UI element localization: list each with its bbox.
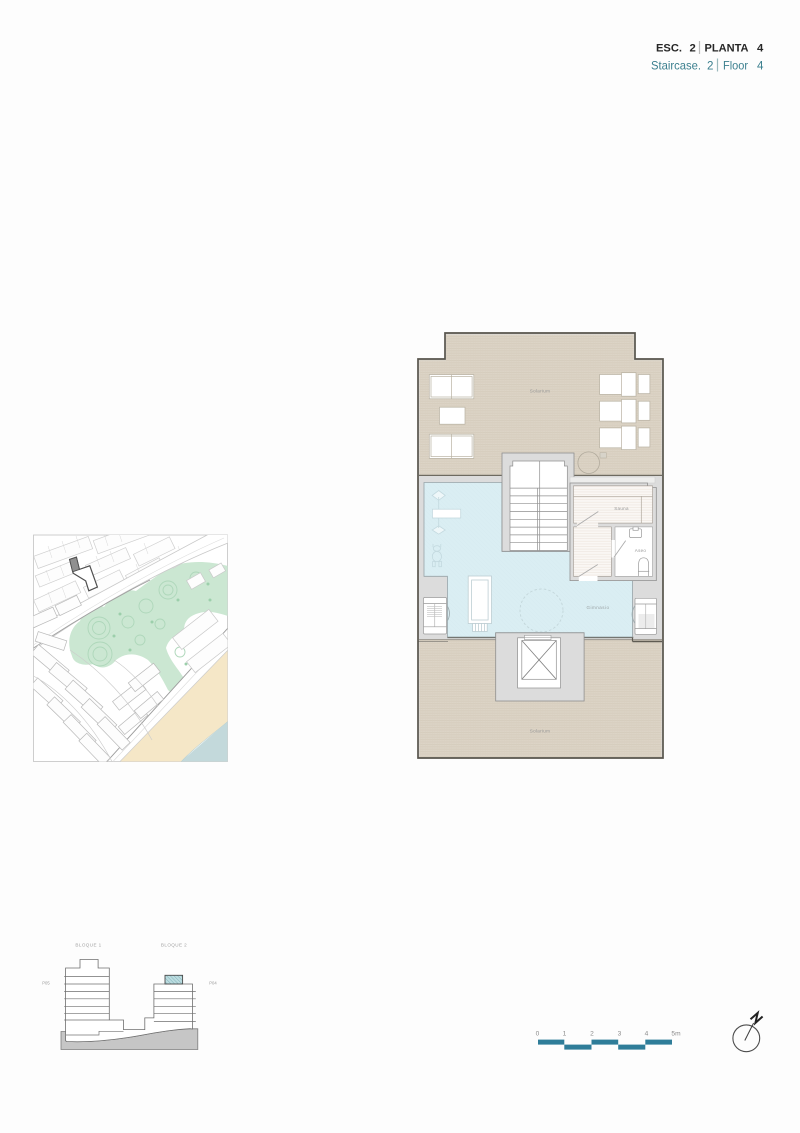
svg-text:Staircase.: Staircase.	[651, 60, 701, 73]
svg-text:Solarium: Solarium	[530, 389, 551, 394]
svg-text:Solarium: Solarium	[530, 729, 551, 734]
svg-text:2: 2	[707, 60, 713, 73]
svg-text:4: 4	[645, 1031, 649, 1038]
svg-text:BLOQUE 2: BLOQUE 2	[161, 943, 187, 948]
svg-text:2: 2	[690, 43, 696, 55]
svg-text:Sauna: Sauna	[614, 506, 629, 511]
svg-text:P05: P05	[42, 981, 50, 986]
svg-text:2: 2	[590, 1031, 594, 1038]
svg-text:3: 3	[618, 1031, 622, 1038]
svg-text:4: 4	[757, 60, 764, 73]
svg-text:1: 1	[563, 1031, 567, 1038]
svg-text:P04: P04	[209, 981, 217, 986]
svg-text:Aseo: Aseo	[635, 548, 647, 553]
svg-text:BLOQUE 1: BLOQUE 1	[75, 943, 101, 948]
svg-text:Floor: Floor	[723, 60, 748, 73]
svg-text:0: 0	[536, 1031, 540, 1038]
svg-text:ESC.: ESC.	[656, 43, 682, 55]
svg-text:PLANTA: PLANTA	[705, 43, 749, 55]
svg-text:5m: 5m	[671, 1031, 681, 1038]
svg-text:4: 4	[757, 43, 764, 55]
svg-text:Gimnasio: Gimnasio	[586, 605, 609, 610]
